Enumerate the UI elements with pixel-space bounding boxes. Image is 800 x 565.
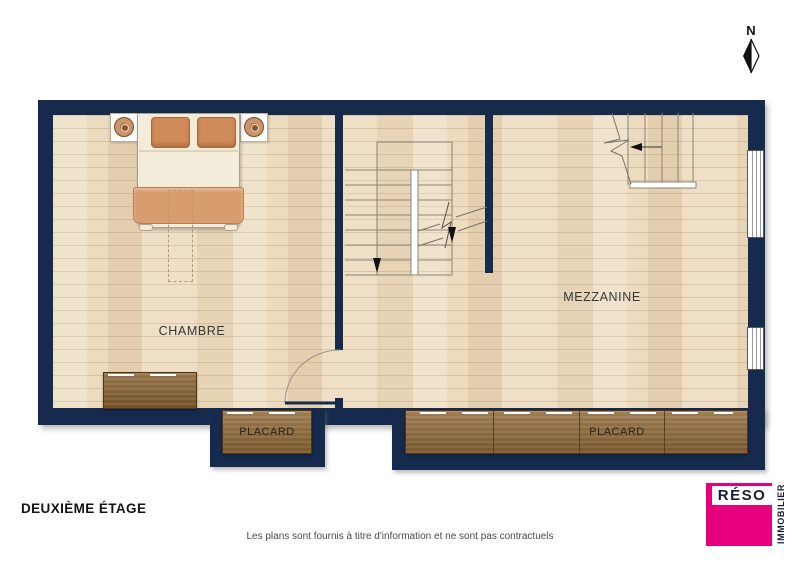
room-label-mezzanine: MEZZANINE — [563, 290, 641, 304]
logo-tagline-text: IMMOBILIER — [773, 483, 789, 546]
unit-handles — [420, 412, 734, 414]
closet-divider — [579, 411, 580, 453]
window-right-lower — [747, 327, 764, 370]
window-right-upper — [747, 150, 764, 238]
closet-divider — [493, 411, 494, 453]
pillow-left — [151, 117, 190, 148]
closet-label-left: PLACARD — [239, 426, 294, 438]
logo-square: RÉSO — [706, 483, 772, 546]
wall-divider-stub — [335, 398, 343, 410]
ceiling-height-dashed-zone — [168, 190, 193, 282]
north-indicator: N — [738, 24, 764, 76]
nightstand-right — [240, 113, 268, 142]
room-label-chambre: CHAMBRE — [159, 324, 226, 338]
nightstand-left — [110, 113, 138, 142]
wall-chambre-divider — [335, 115, 343, 350]
agency-logo: RÉSO IMMOBILIER — [706, 483, 790, 546]
wall-stair-divider — [485, 115, 493, 273]
closet-divider — [664, 411, 665, 453]
unit-handles — [227, 412, 308, 414]
floor-title: DEUXIÈME ÉTAGE — [21, 501, 146, 516]
lamp-icon — [114, 117, 134, 137]
bed-foot-right — [224, 224, 238, 231]
pillow-right — [197, 117, 236, 148]
bed-sheet-fold — [139, 150, 238, 152]
closet-right-unit — [405, 410, 748, 454]
logo-brand-text: RÉSO — [712, 486, 772, 505]
north-label: N — [738, 24, 764, 37]
disclaimer-text: Les plans sont fournis à titre d'informa… — [246, 531, 553, 542]
floorplan-canvas: N — [0, 0, 800, 565]
dresser — [103, 372, 197, 409]
bed-foot-left — [139, 224, 153, 231]
closet-label-right: PLACARD — [589, 426, 644, 438]
unit-handles — [108, 374, 193, 376]
lamp-icon — [244, 117, 264, 137]
north-arrow-icon — [738, 37, 764, 75]
